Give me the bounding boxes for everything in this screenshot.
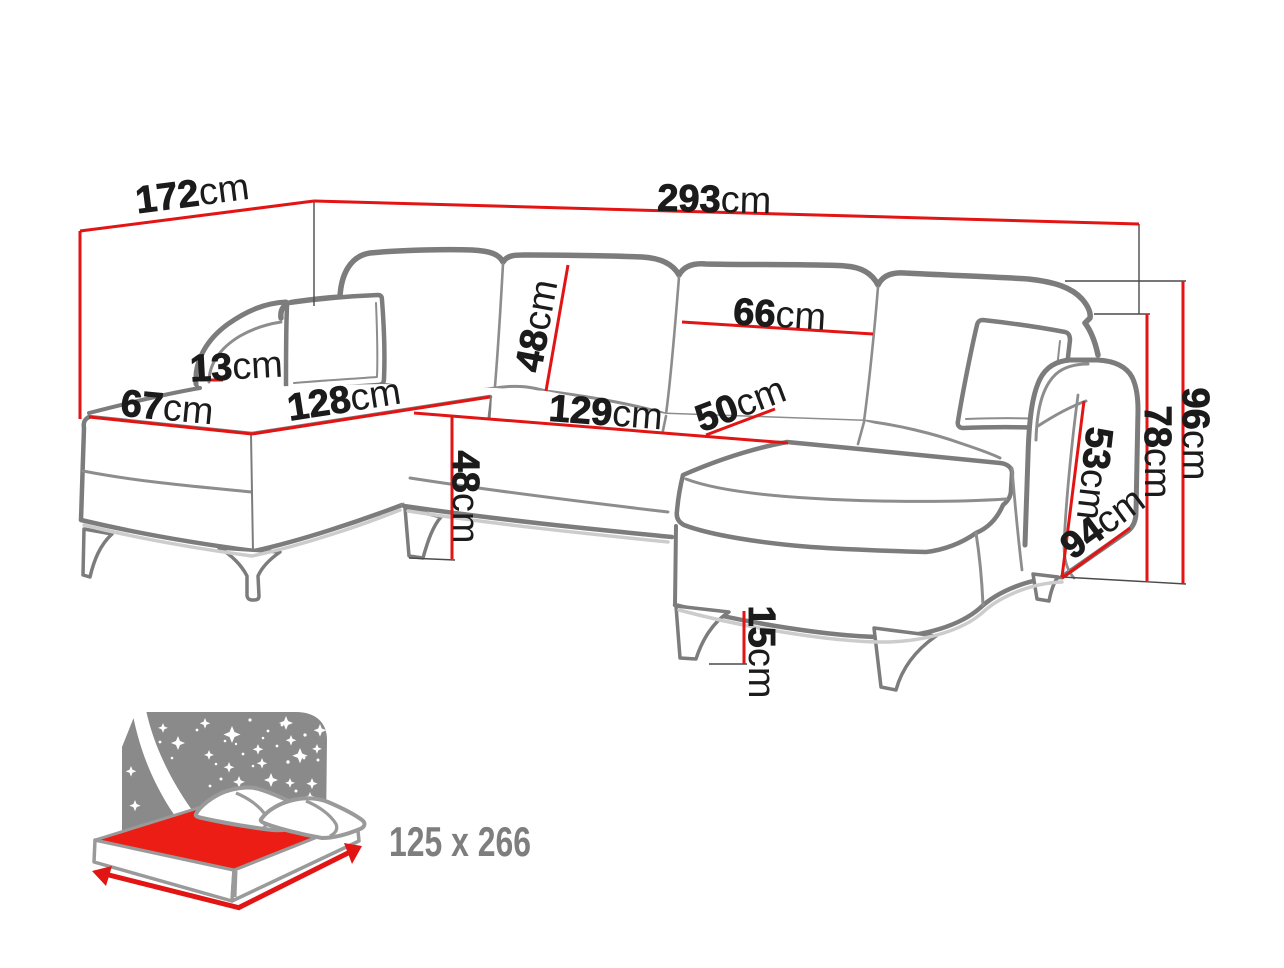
svg-text:48cm: 48cm: [444, 451, 486, 544]
svg-text:15cm: 15cm: [740, 606, 782, 699]
svg-text:125 x 266: 125 x 266: [389, 818, 531, 865]
svg-text:96cm: 96cm: [1174, 388, 1216, 481]
svg-text:13cm: 13cm: [189, 344, 284, 391]
svg-text:78cm: 78cm: [1136, 406, 1178, 499]
svg-text:129cm: 129cm: [547, 388, 664, 439]
svg-text:66cm: 66cm: [732, 291, 827, 339]
svg-text:293cm: 293cm: [657, 178, 772, 223]
svg-text:67cm: 67cm: [119, 383, 216, 434]
